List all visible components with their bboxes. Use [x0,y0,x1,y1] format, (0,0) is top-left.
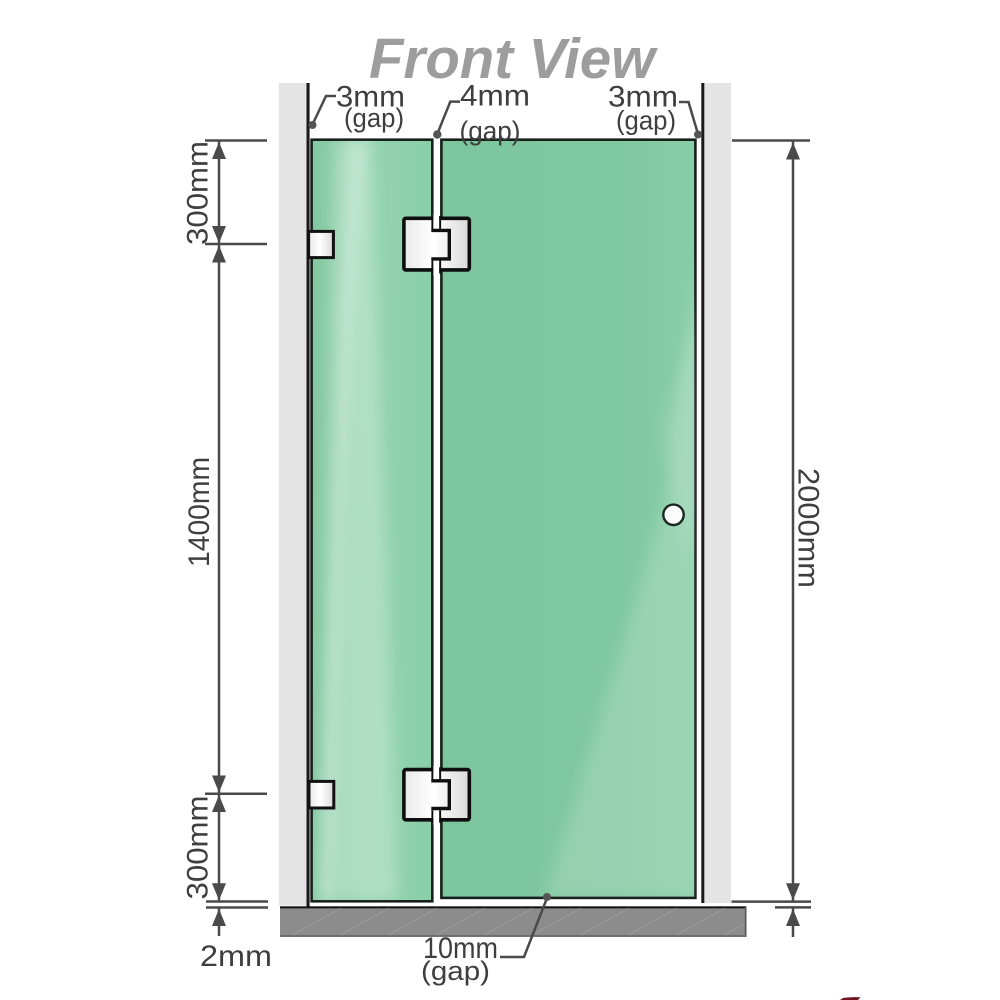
svg-text:1400mm: 1400mm [183,457,216,567]
svg-text:2mm: 2mm [200,940,272,973]
svg-text:300mm: 300mm [182,141,215,245]
svg-text:4mm: 4mm [460,80,530,113]
svg-text:(gap): (gap) [421,956,490,986]
svg-text:(gap): (gap) [616,106,676,136]
svg-text:300mm: 300mm [182,796,215,900]
svg-text:2000mm: 2000mm [792,468,825,588]
svg-text:(gap): (gap) [460,116,521,146]
svg-text:(gap): (gap) [344,103,404,133]
